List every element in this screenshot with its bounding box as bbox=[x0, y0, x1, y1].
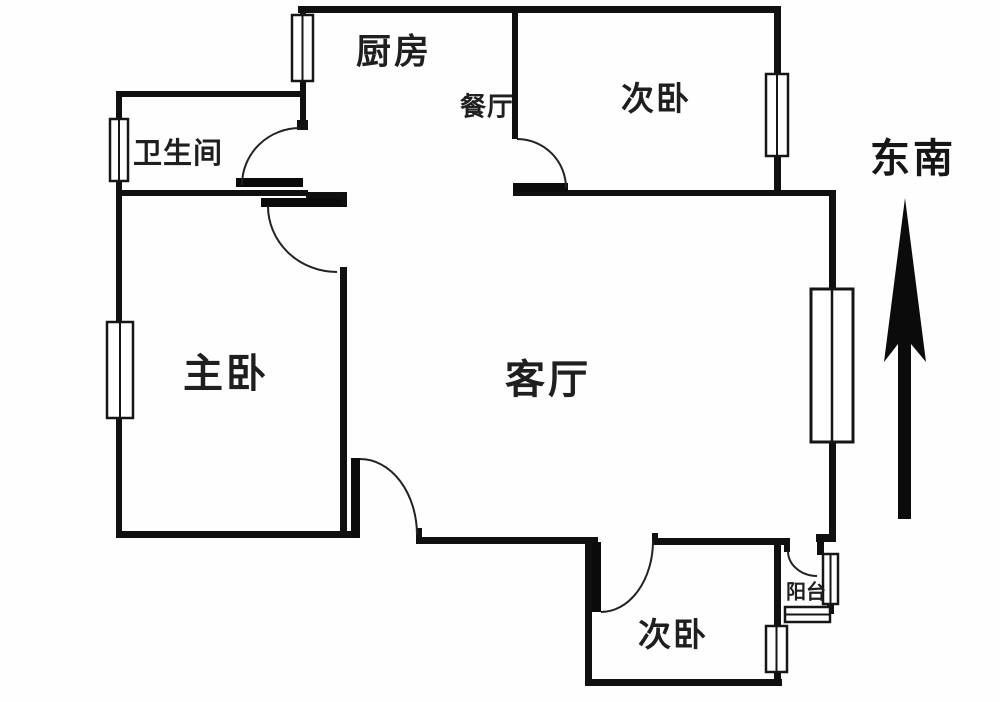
wall-top bbox=[298, 6, 781, 13]
compass-direction-label: 东南 bbox=[870, 126, 956, 184]
room-label-balcony: 阳台 bbox=[786, 576, 826, 605]
window-balcony-bottom bbox=[785, 607, 830, 622]
balcony-door-arc bbox=[788, 551, 817, 576]
room-label-bathroom: 卫生间 bbox=[133, 130, 223, 172]
bathroom-door-arc bbox=[242, 128, 300, 185]
room-label-master-bedroom: 主卧 bbox=[183, 341, 269, 399]
bathroom-door-leaf bbox=[236, 178, 303, 187]
entry-door-arc bbox=[360, 459, 417, 535]
bedroomb-door-arc bbox=[601, 541, 653, 612]
floor-plan: 厨房 餐厅 次卧 卫生间 主卧 客厅 次卧 阳台 东南 bbox=[0, 0, 1000, 702]
room-label-dining: 餐厅 bbox=[460, 87, 514, 124]
wall-master-right bbox=[340, 267, 347, 538]
window-kitchen bbox=[292, 15, 313, 81]
wall-bathroom-bottom bbox=[116, 190, 308, 196]
room-label-bedroom-bottom: 次卧 bbox=[638, 608, 708, 656]
room-label-bedroom-top-right: 次卧 bbox=[621, 72, 691, 120]
window-master-bedroom bbox=[107, 322, 133, 418]
window-bedroom-bottom bbox=[766, 626, 787, 672]
bedroomb-door-leaf bbox=[592, 542, 601, 612]
kitchen-door-arc bbox=[268, 206, 337, 272]
wall-bedroomb-top-cap bbox=[652, 533, 658, 540]
window-bedroom-top-right bbox=[766, 74, 788, 156]
wall-balcony-jog bbox=[816, 534, 836, 542]
room-label-living-room: 客厅 bbox=[505, 347, 591, 405]
room-label-kitchen: 厨房 bbox=[356, 24, 432, 75]
entry-door-leaf bbox=[351, 458, 360, 538]
wall-bedroomb-bottom bbox=[585, 679, 782, 686]
kitchen-door-leaf bbox=[261, 198, 342, 207]
dining-door-arc bbox=[517, 139, 566, 188]
window-living-room-east bbox=[811, 289, 853, 442]
wall-balcony-door-stub bbox=[784, 545, 790, 552]
wall-living-right-upper bbox=[829, 190, 836, 292]
compass-arrow-icon bbox=[884, 198, 926, 519]
window-bathroom bbox=[110, 119, 128, 181]
wall-bathroom-top bbox=[116, 91, 306, 97]
wall-living-right-lower bbox=[829, 440, 836, 538]
wall-master-bottom bbox=[116, 531, 356, 538]
wall-bedroomb-top bbox=[652, 538, 790, 545]
wall-living-bottom-left bbox=[416, 537, 598, 544]
dining-door-leaf bbox=[513, 183, 568, 192]
wall-bedroomb-left bbox=[585, 540, 592, 686]
